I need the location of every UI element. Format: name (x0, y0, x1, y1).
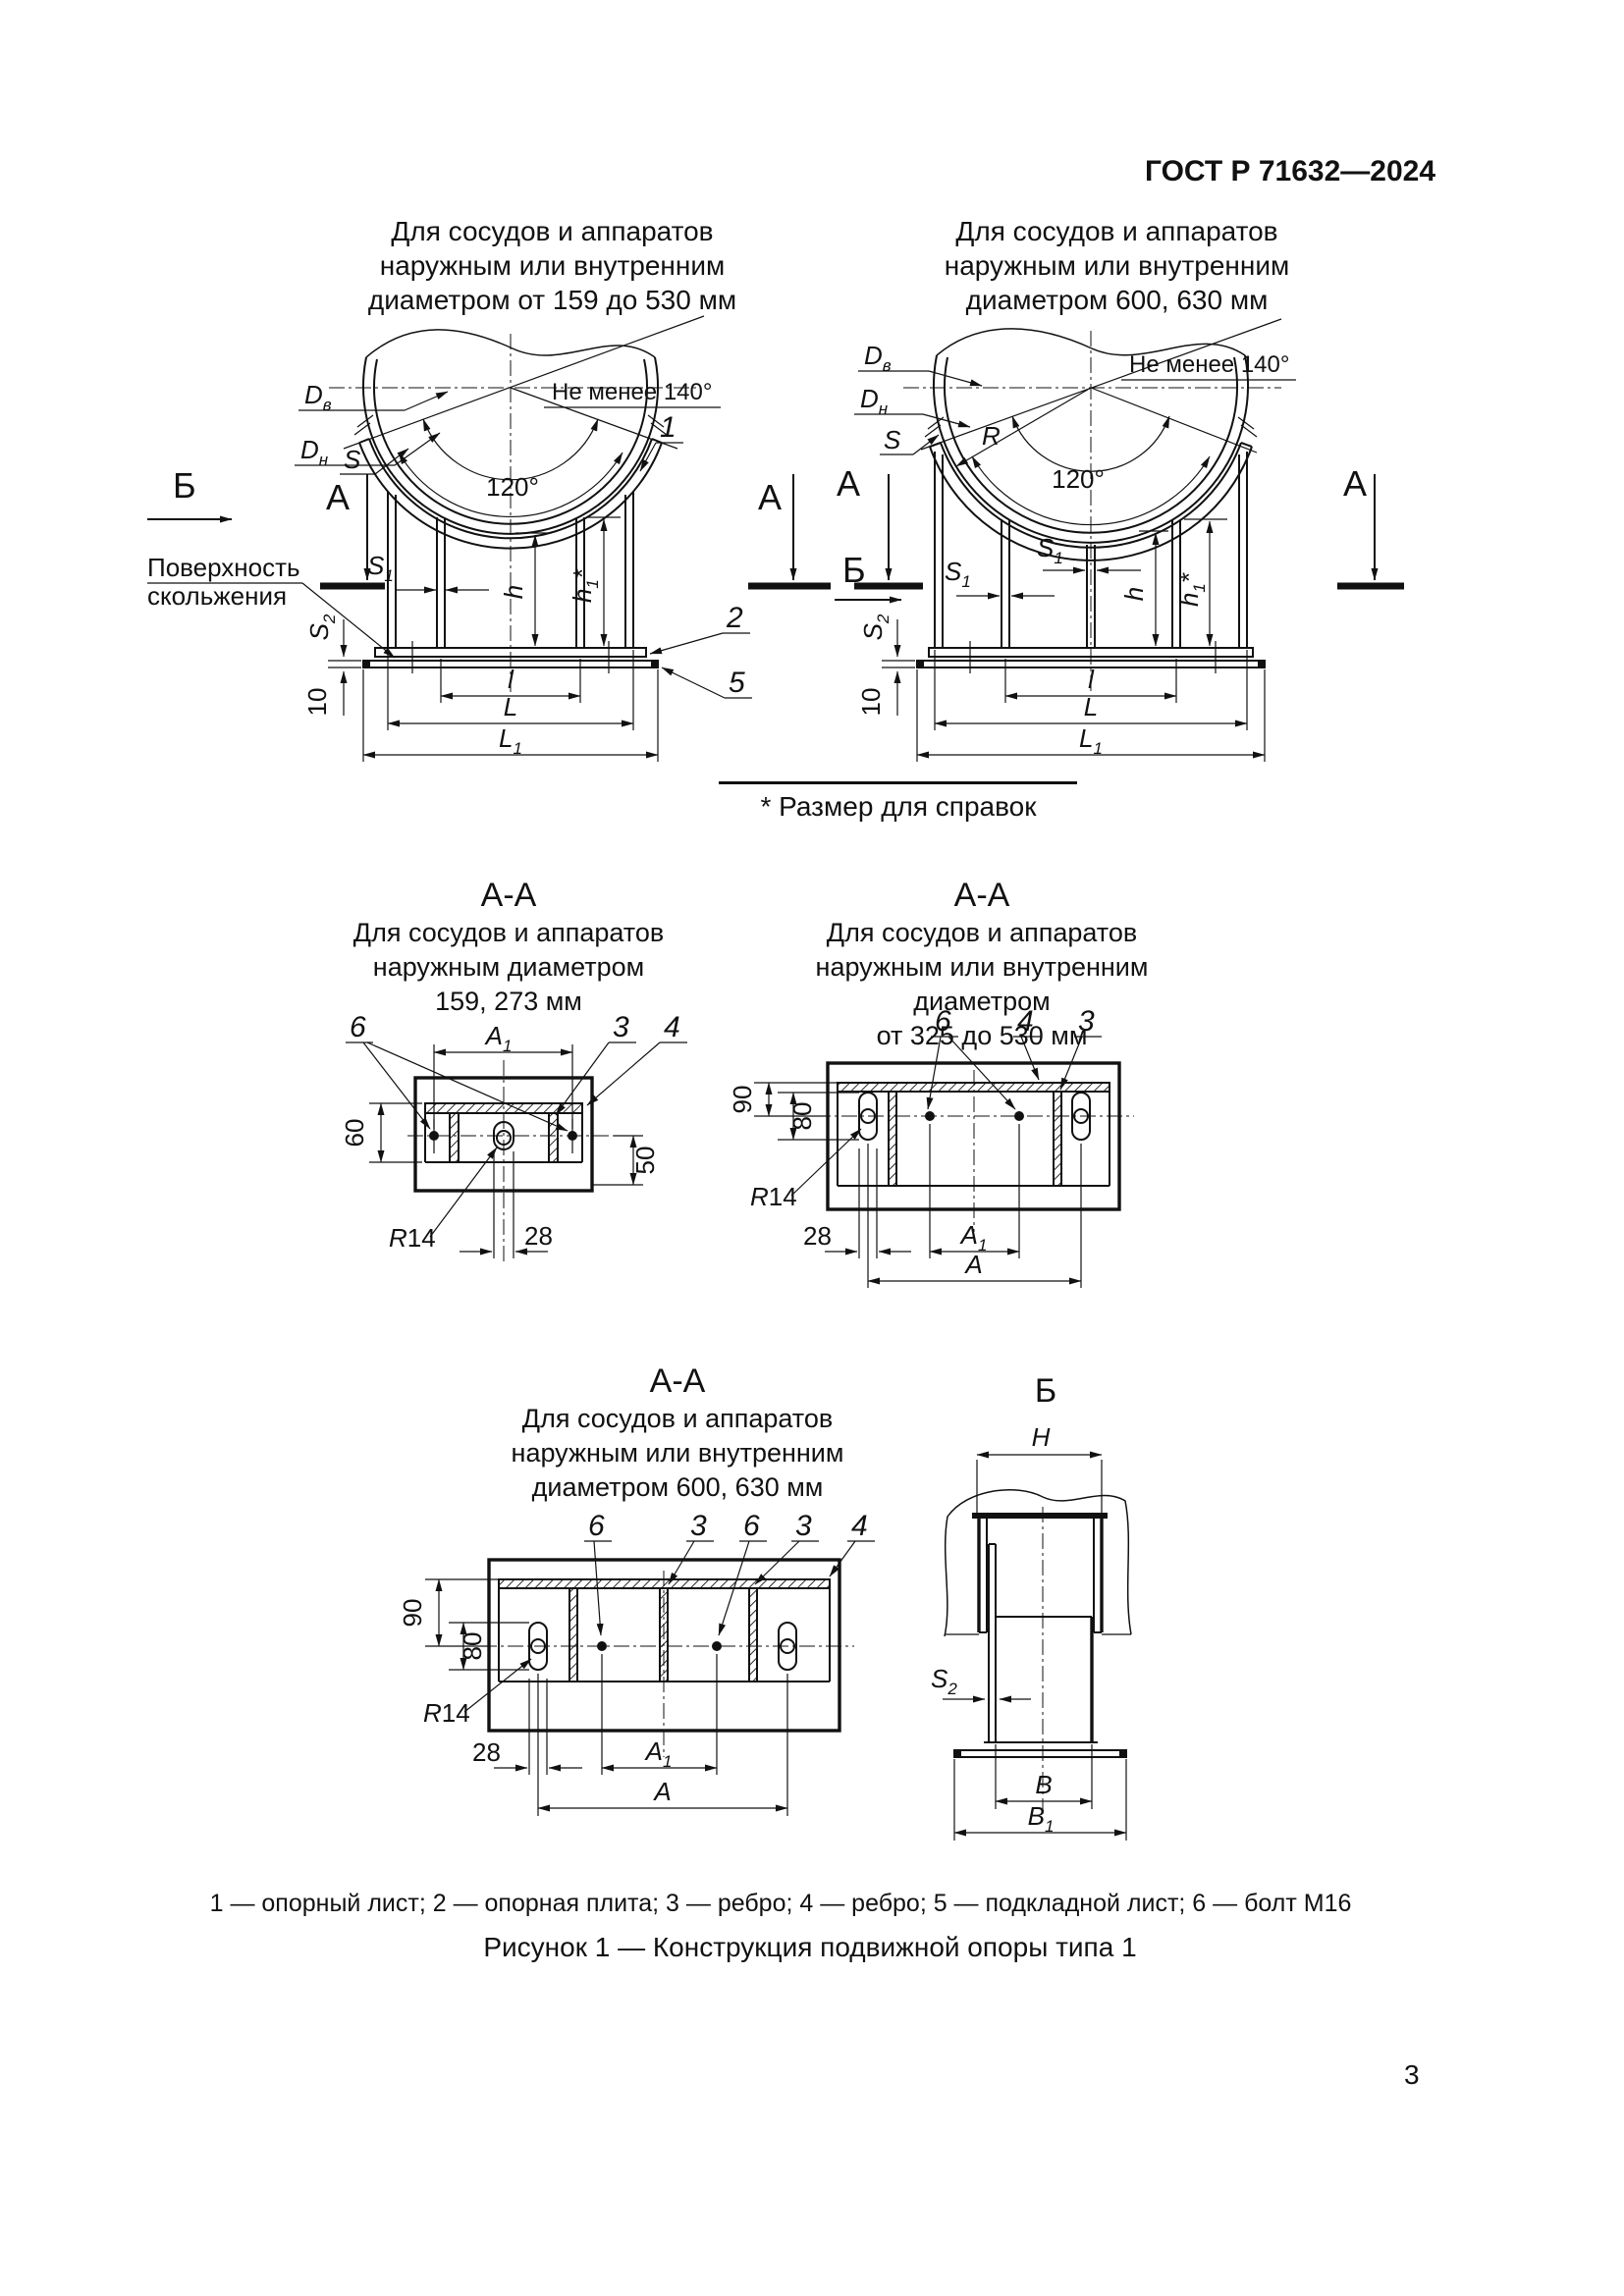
label-120deg: 120° (486, 472, 539, 502)
front-view-right: R Не менее 140° 120° (835, 280, 1463, 849)
footnote-text: * Размер для справок (687, 791, 1110, 823)
callout-6: 6 (935, 1005, 951, 1038)
view-a-mark-right: А (758, 477, 782, 517)
dim-90: 90 (728, 1086, 757, 1114)
plate-outline (481, 1560, 854, 1757)
standard-number: ГОСТ Р 71632—2024 (982, 155, 1435, 188)
footnote-rule (719, 781, 1077, 784)
label-dn: Dн (300, 435, 329, 469)
callout-4: 4 (1017, 1005, 1034, 1038)
label-s: S (344, 445, 361, 474)
dim-60: 60 (340, 1119, 369, 1148)
front-view-left: Не менее 140° 120° Dв Dн S Б А А (147, 280, 844, 849)
upper-bracket (945, 1490, 1131, 1636)
dimensions: A1 60 50 R14 28 (340, 1021, 660, 1258)
label-surface-2: скольжения (147, 581, 287, 611)
dim-28: 28 (524, 1221, 553, 1251)
view-b-drawing: H S2 B B1 (923, 1369, 1296, 1860)
dim-r14: R14 (423, 1698, 470, 1728)
dim-a1: A1 (644, 1736, 673, 1771)
dim-50: 50 (630, 1147, 660, 1175)
dim-s2: S2 (304, 614, 339, 640)
dim-L: L (504, 692, 517, 721)
dim-s1: S1 (367, 551, 394, 585)
dimensions: S1 S1 h h1* S2 10 l L (856, 519, 1265, 762)
section-aa3-title: А-А (579, 1362, 776, 1401)
callout-6a: 6 (588, 1510, 605, 1542)
callout-6: 6 (350, 1011, 366, 1043)
dim-a: A (963, 1250, 982, 1279)
dim-80: 80 (458, 1632, 487, 1661)
diameter-labels: Dв Dн S (295, 380, 448, 474)
label-dn: Dн (860, 384, 889, 418)
section-aa3-drawing: 90 80 R14 28 A1 A 6 3 (407, 1433, 957, 1845)
callout-5: 5 (729, 667, 745, 699)
dim-r14: R14 (750, 1182, 797, 1211)
label-dv: Dв (864, 341, 892, 375)
dim-r14: R14 (389, 1223, 436, 1253)
view-a-mark-left: А (837, 463, 860, 504)
dim-a: A (652, 1777, 671, 1806)
label-dv: Dв (304, 380, 332, 414)
label-min-140: Не менее 140° (1129, 351, 1289, 378)
section-marks: Б А А (835, 463, 1404, 600)
label-r: R (982, 421, 1001, 451)
callout-6b: 6 (743, 1510, 760, 1542)
dim-h: h (1119, 587, 1149, 601)
dim-s2: S2 (931, 1664, 957, 1698)
dim-s2: S2 (858, 614, 893, 640)
section-aa1-title: А-А (410, 877, 607, 915)
dim-s1-left: S1 (945, 557, 971, 591)
dim-B1: B1 (1028, 1801, 1055, 1836)
dim-a1: A1 (484, 1021, 513, 1055)
dimensions: S1 h h1* S2 10 l L L1 (302, 517, 658, 762)
section-aa2-drawing: 90 80 R14 28 A1 A 6 4 (727, 1001, 1237, 1325)
diameter-labels: Dв Dн S (854, 341, 982, 454)
angle-callouts: Не менее 140° 120° (399, 379, 721, 516)
figure-caption: Рисунок 1 — Конструкция подвижной опоры … (295, 1932, 1326, 1963)
dim-90: 90 (398, 1599, 427, 1628)
slide-surface-note: Поверхность скольжения (147, 553, 395, 658)
callout-3: 3 (613, 1011, 629, 1043)
label-120deg: 120° (1052, 464, 1105, 494)
plate-outline (815, 1063, 1134, 1232)
dim-80: 80 (787, 1102, 817, 1131)
part-callouts: 6 3 6 3 4 (584, 1510, 875, 1635)
callout-1: 1 (660, 411, 677, 444)
label-min-140: Не менее 140° (552, 379, 712, 405)
callout-3: 3 (1078, 1005, 1095, 1038)
dim-l: l (508, 665, 514, 694)
dim-H: H (1032, 1422, 1051, 1452)
dim-L1: L1 (499, 723, 522, 758)
label-surface-1: Поверхность (147, 553, 300, 582)
callout-4: 4 (664, 1011, 680, 1043)
dim-10: 10 (302, 688, 332, 717)
section-aa2-title: А-А (884, 877, 1080, 915)
callout-2: 2 (726, 602, 743, 634)
dim-L1: L1 (1079, 723, 1103, 758)
dim-s1-center: S1 (1037, 533, 1063, 567)
vessel-and-saddle (329, 316, 704, 692)
view-b-mark: Б (173, 465, 196, 506)
dim-h: h (499, 585, 528, 599)
callout-3a: 3 (690, 1510, 707, 1542)
callout-4: 4 (851, 1510, 868, 1542)
dim-h1: h1* (568, 568, 602, 603)
view-a-mark-left: А (326, 477, 350, 517)
dimensions: 90 80 R14 28 A1 A (398, 1579, 787, 1816)
dim-10: 10 (856, 688, 886, 717)
document-page: ГОСТ Р 71632—2024 Для сосудов и аппарато… (0, 0, 1624, 2296)
dim-28: 28 (472, 1737, 501, 1767)
parts-legend: 1 — опорный лист; 2 — опорная плита; 3 —… (147, 1890, 1414, 1918)
view-a-mark-right: А (1343, 463, 1367, 504)
label-s: S (884, 425, 901, 454)
callout-3b: 3 (795, 1510, 812, 1542)
dim-L: L (1084, 692, 1098, 721)
dim-28: 28 (803, 1221, 832, 1251)
dim-B: B (1035, 1770, 1052, 1799)
dim-l: l (1088, 665, 1095, 694)
page-number: 3 (1404, 2059, 1420, 2091)
section-aa1-drawing: A1 60 50 R14 28 6 3 4 (334, 1001, 727, 1296)
